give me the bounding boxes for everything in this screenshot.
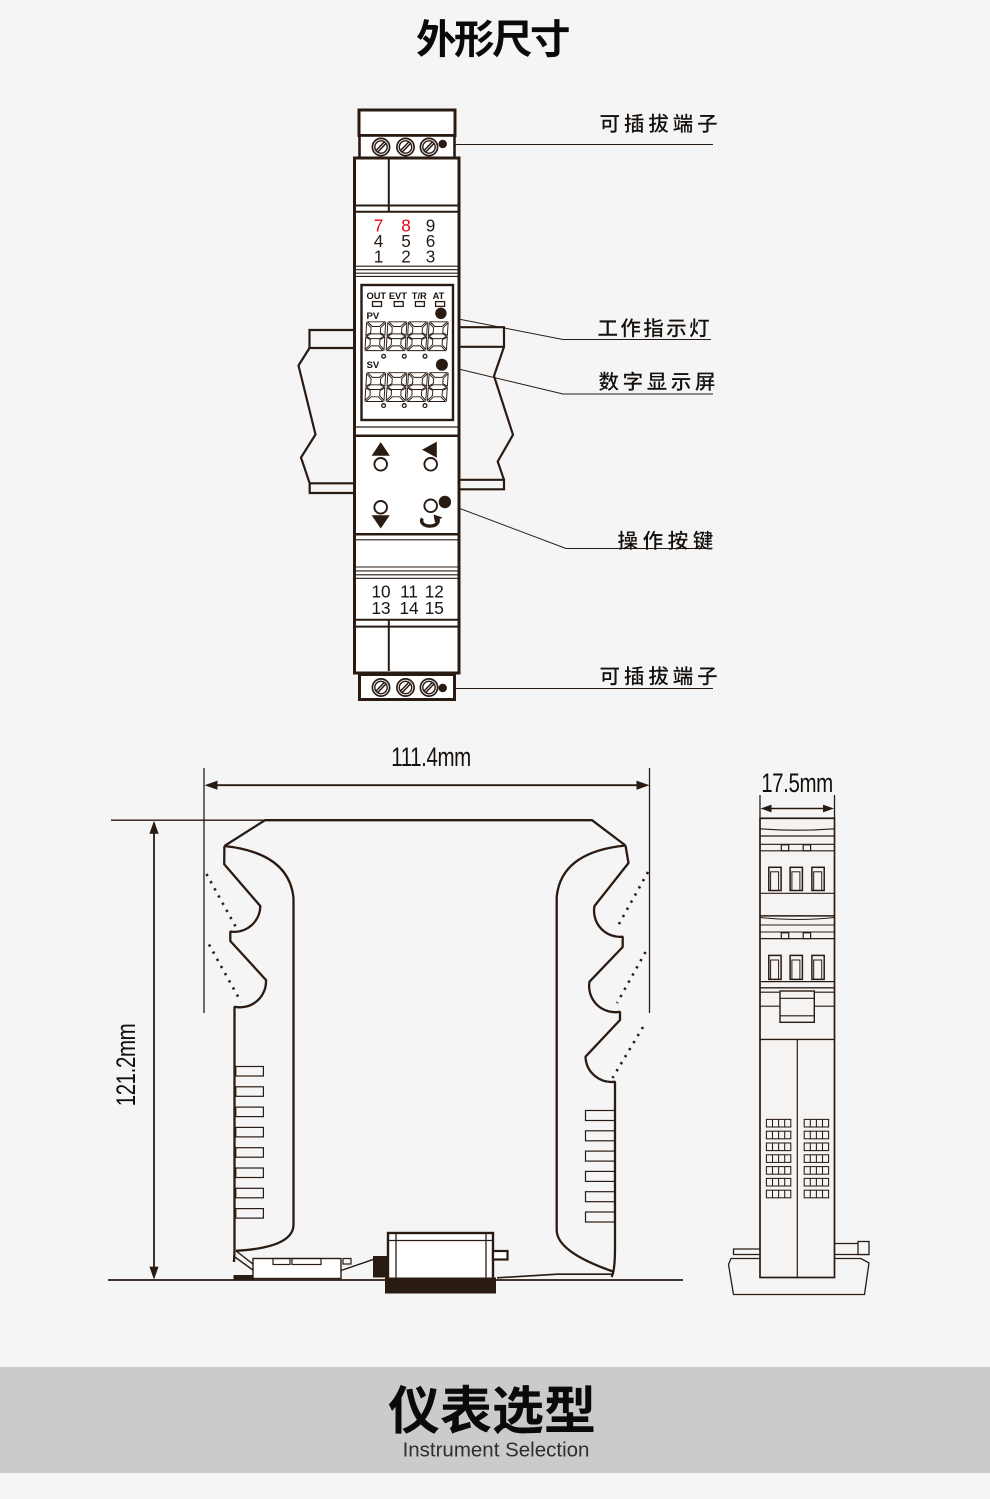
svg-text:Instrument Selection: Instrument Selection [403,1439,590,1462]
svg-text:13: 13 [371,598,390,618]
svg-text:121.2mm: 121.2mm [111,1024,141,1107]
svg-text:1: 1 [374,247,384,267]
svg-text:T/R: T/R [412,291,427,301]
svg-text:2: 2 [401,247,411,267]
svg-text:PV: PV [367,311,380,322]
svg-text:15: 15 [425,598,444,618]
svg-text:17.5mm: 17.5mm [761,768,833,798]
svg-text:AT: AT [433,291,445,301]
svg-text:SV: SV [367,360,380,371]
svg-text:OUT: OUT [366,291,386,301]
svg-text:3: 3 [426,247,436,267]
svg-text:111.4mm: 111.4mm [391,742,471,772]
svg-text:14: 14 [399,598,419,618]
svg-text:EVT: EVT [389,291,407,301]
